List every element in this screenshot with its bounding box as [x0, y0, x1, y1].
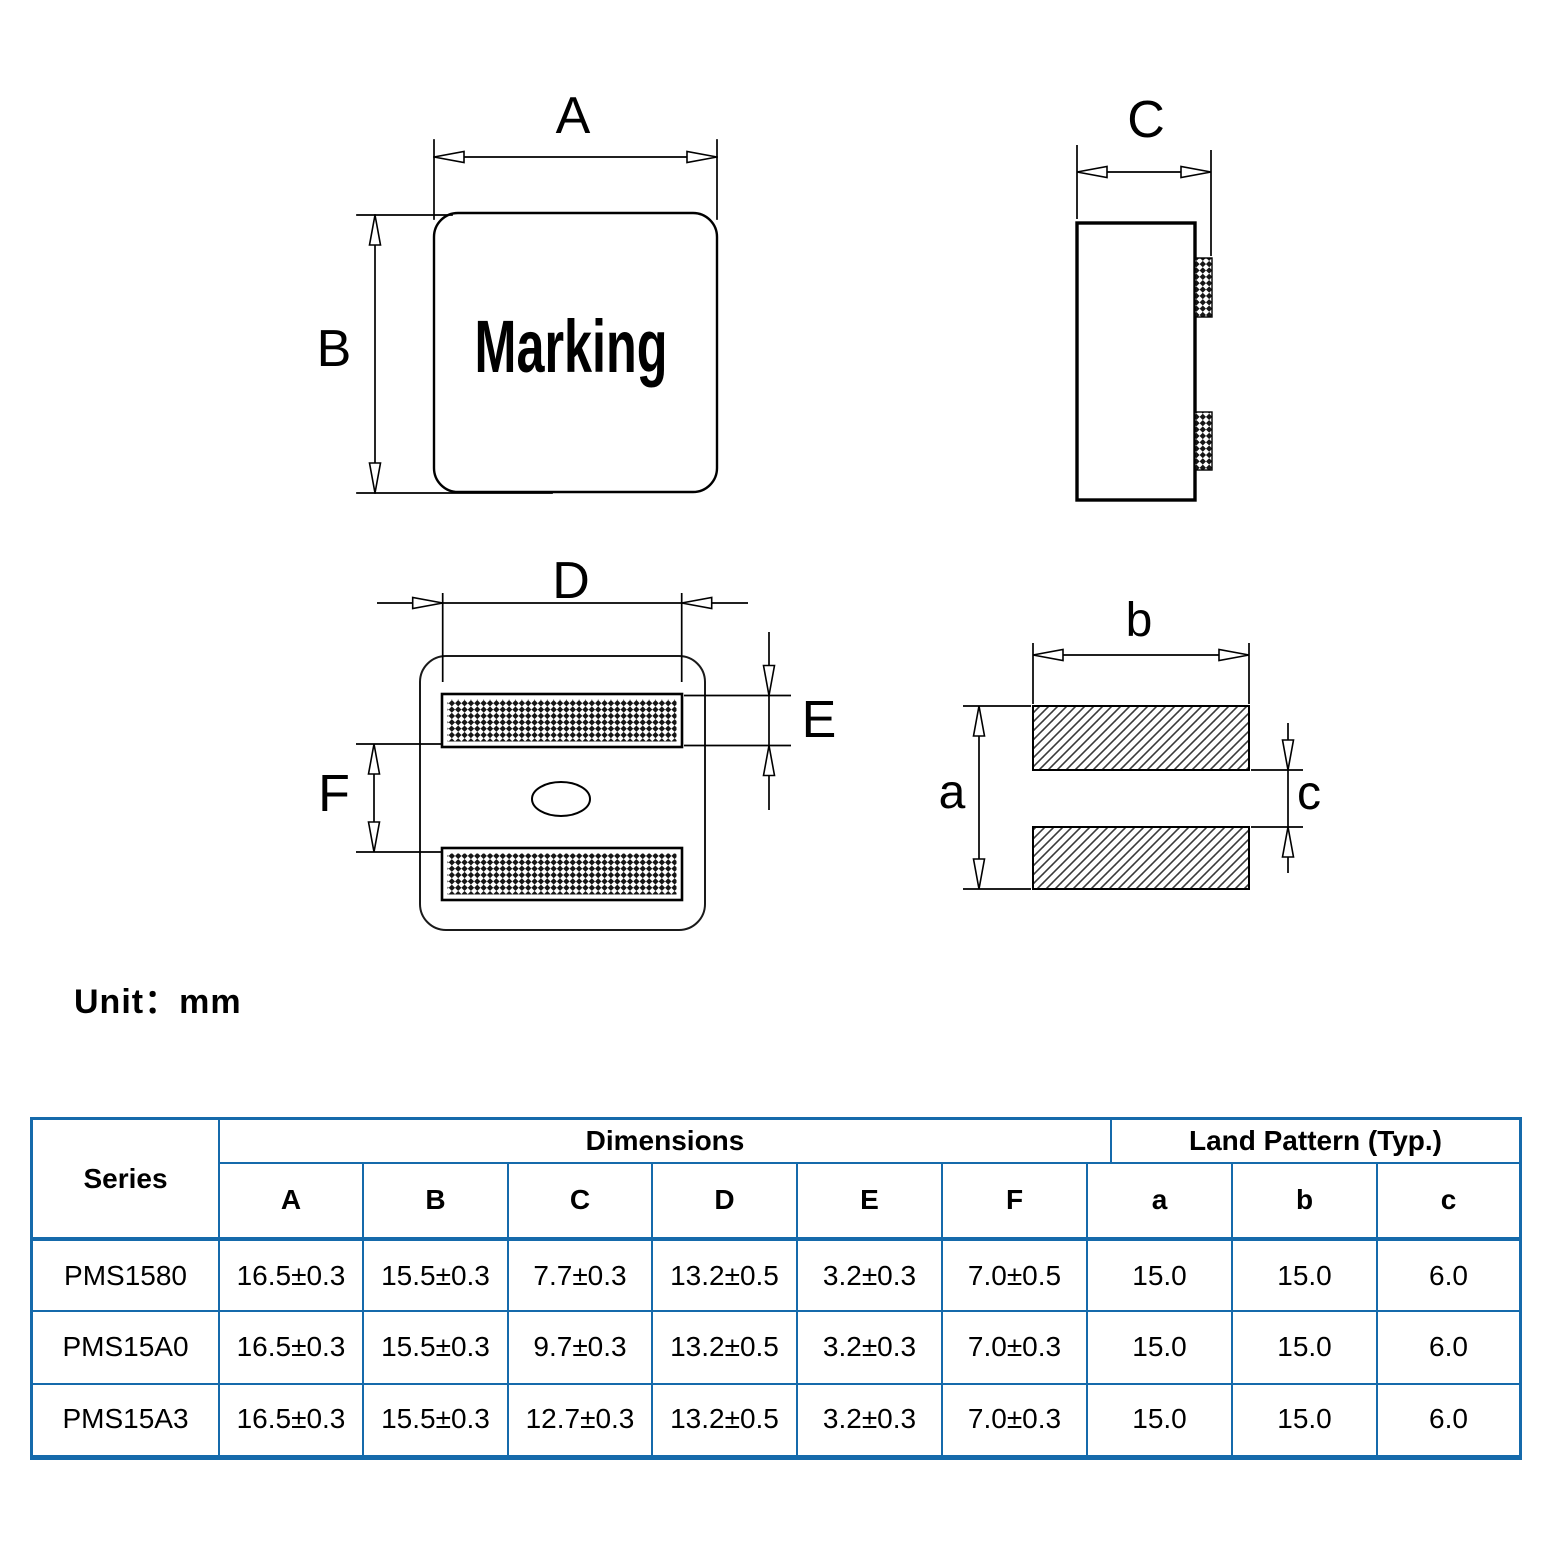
- table-cell: 7.0±0.5: [943, 1241, 1086, 1310]
- land-pad-bottom: [1033, 827, 1249, 889]
- table-cell: 7.7±0.3: [509, 1241, 651, 1310]
- col-header-b: b: [1233, 1164, 1376, 1235]
- arrowhead: [974, 859, 985, 889]
- arrowhead: [369, 822, 380, 852]
- table-cell: 7.0±0.3: [943, 1312, 1086, 1381]
- row-series: PMS15A0: [33, 1312, 218, 1381]
- spec-table: Series Dimensions Land Pattern (Typ.) A …: [30, 1117, 1522, 1460]
- dim-label-b: b: [1126, 594, 1153, 647]
- table-cell: 15.0: [1088, 1385, 1231, 1453]
- table-border-bottom: [30, 1455, 1522, 1460]
- table-cell: 9.7±0.3: [509, 1312, 651, 1381]
- arrowhead: [1181, 167, 1211, 178]
- header-dimensions: Dimensions: [220, 1120, 1110, 1162]
- bottom-pad-top-fill: [448, 700, 677, 742]
- header-land-pattern: Land Pattern (Typ.): [1112, 1120, 1519, 1162]
- dimension-c: [1251, 723, 1303, 873]
- marking-text: Marking: [475, 307, 668, 389]
- land-pattern-drawing: b a c: [939, 594, 1321, 889]
- table-cell: 13.2±0.5: [653, 1241, 796, 1310]
- land-pad-top: [1033, 706, 1249, 770]
- dimension-A: [434, 140, 717, 219]
- dim-label-c: c: [1297, 767, 1321, 820]
- dimension-drawings: Marking A B: [0, 0, 1562, 1080]
- dim-label-D: D: [552, 552, 590, 610]
- col-header-a: a: [1088, 1164, 1231, 1235]
- dim-label-B: B: [317, 320, 352, 378]
- table-cell: 16.5±0.3: [220, 1385, 362, 1453]
- table-cell: 15.5±0.3: [364, 1241, 507, 1310]
- arrowhead: [413, 598, 443, 609]
- side-view-drawing: C: [1077, 91, 1212, 500]
- table-cell: 15.5±0.3: [364, 1385, 507, 1453]
- table-cell: 6.0: [1378, 1241, 1519, 1310]
- terminal-pad-lower: [1195, 412, 1212, 470]
- top-view-drawing: Marking A B: [317, 87, 717, 493]
- table-cell: 15.0: [1088, 1241, 1231, 1310]
- dim-label-C: C: [1127, 91, 1165, 149]
- component-body-side-view: [1077, 223, 1195, 500]
- table-cell: 13.2±0.5: [653, 1312, 796, 1381]
- dim-label-E: E: [802, 691, 837, 749]
- table-cell: 15.0: [1233, 1385, 1376, 1453]
- arrowhead: [682, 598, 712, 609]
- table-cell: 6.0: [1378, 1385, 1519, 1453]
- table-cell: 16.5±0.3: [220, 1241, 362, 1310]
- arrowhead: [974, 706, 985, 736]
- row-series: PMS1580: [33, 1241, 218, 1310]
- col-header-c: c: [1378, 1164, 1519, 1235]
- arrowhead: [434, 152, 464, 163]
- table-cell: 3.2±0.3: [798, 1385, 941, 1453]
- col-header-D: D: [653, 1164, 796, 1235]
- table-cell: 15.0: [1233, 1312, 1376, 1381]
- bottom-view-drawing: D E F: [318, 552, 836, 930]
- table-cell: 16.5±0.3: [220, 1312, 362, 1381]
- col-header-B: B: [364, 1164, 507, 1235]
- table-cell: 15.0: [1088, 1312, 1231, 1381]
- table-cell: 7.0±0.3: [943, 1385, 1086, 1453]
- table-cell: 6.0: [1378, 1312, 1519, 1381]
- header-series: Series: [33, 1120, 218, 1237]
- table-cell: 3.2±0.3: [798, 1312, 941, 1381]
- col-header-C: C: [509, 1164, 651, 1235]
- table-cell: 12.7±0.3: [509, 1385, 651, 1453]
- dim-label-A: A: [556, 87, 591, 145]
- row-series: PMS15A3: [33, 1385, 218, 1453]
- arrowhead: [1077, 167, 1107, 178]
- arrowhead: [764, 746, 775, 776]
- table-border-right: [1519, 1117, 1522, 1460]
- dim-label-a: a: [939, 766, 966, 819]
- table-cell: 15.5±0.3: [364, 1312, 507, 1381]
- table-cell: 15.0: [1233, 1241, 1376, 1310]
- unit-label: Unit：mm: [74, 974, 242, 1023]
- dimension-b: [1033, 643, 1249, 704]
- dim-label-F: F: [318, 765, 350, 823]
- col-header-F: F: [943, 1164, 1086, 1235]
- col-header-A: A: [220, 1164, 362, 1235]
- col-header-E: E: [798, 1164, 941, 1235]
- bottom-pad-bottom-fill: [448, 854, 677, 895]
- arrowhead: [1033, 650, 1063, 661]
- arrowhead: [370, 215, 381, 245]
- center-mark-ellipse: [532, 782, 590, 816]
- table-cell: 3.2±0.3: [798, 1241, 941, 1310]
- arrowhead: [764, 666, 775, 696]
- arrowhead: [369, 744, 380, 774]
- datasheet-page: Marking A B: [0, 0, 1562, 1562]
- arrowhead: [370, 463, 381, 493]
- arrowhead: [687, 152, 717, 163]
- table-cell: 13.2±0.5: [653, 1385, 796, 1453]
- arrowhead: [1283, 740, 1294, 770]
- terminal-pad-upper: [1195, 258, 1212, 317]
- arrowhead: [1283, 827, 1294, 857]
- arrowhead: [1219, 650, 1249, 661]
